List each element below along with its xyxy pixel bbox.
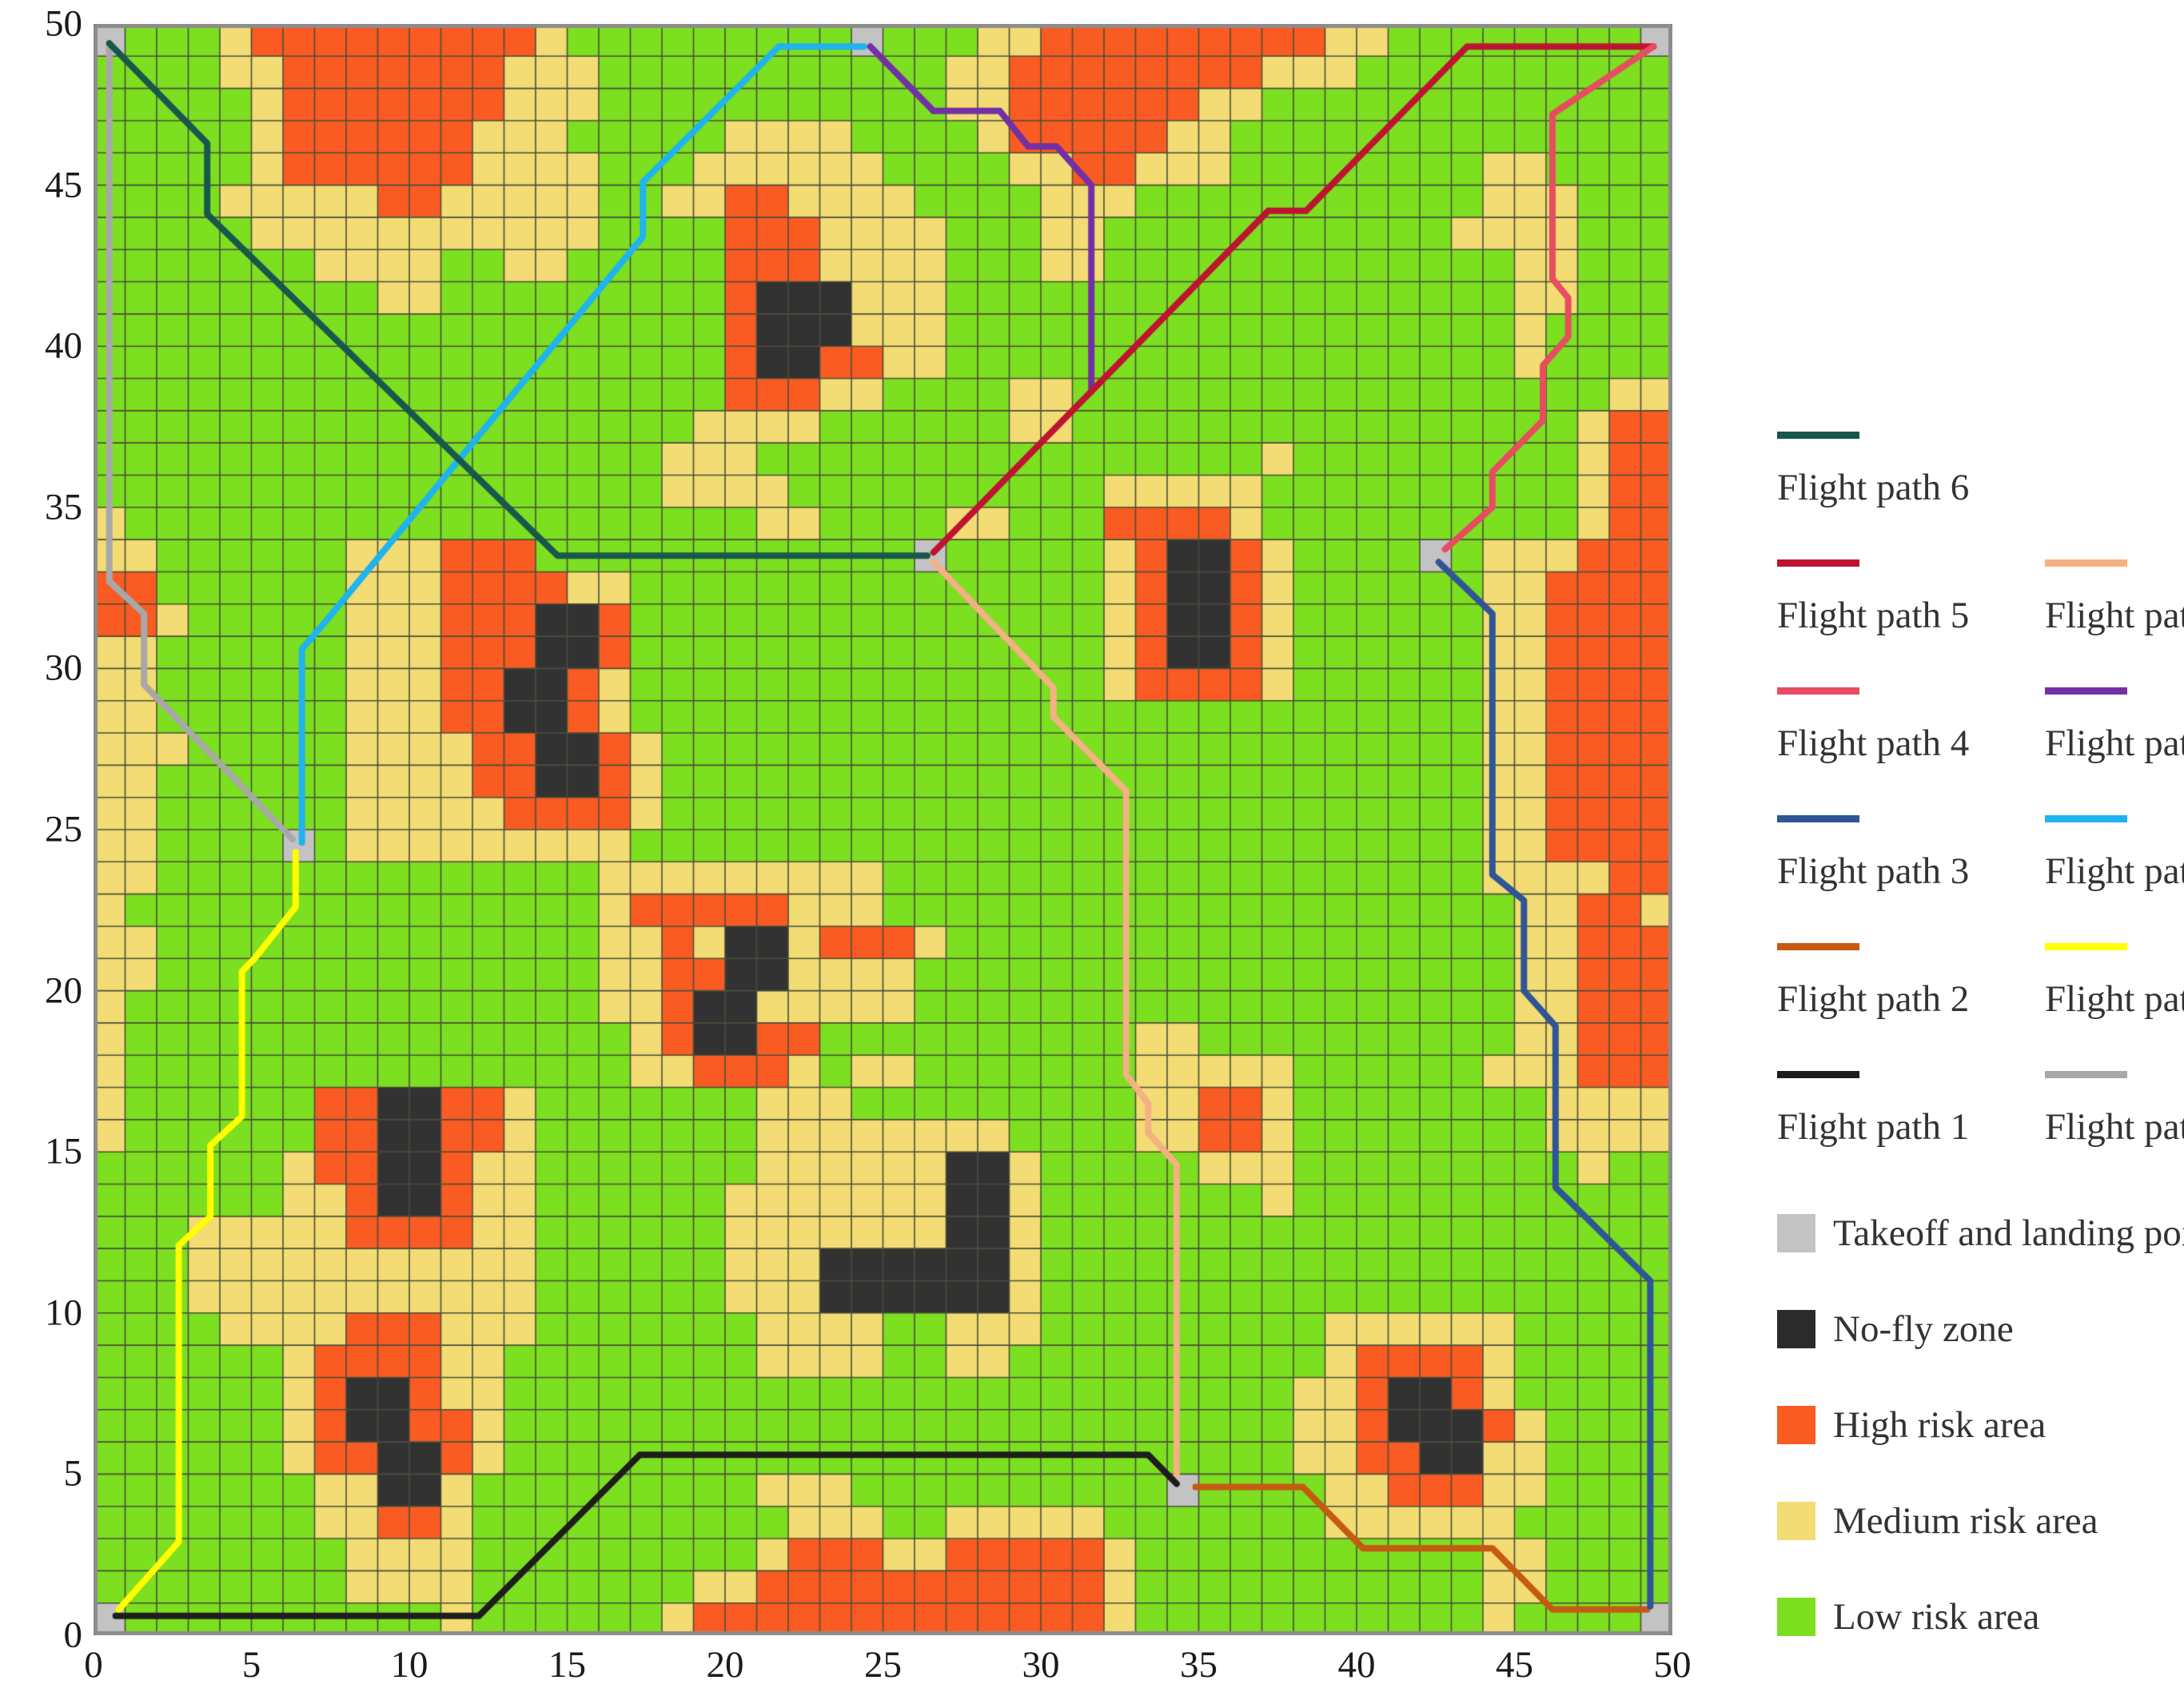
legend-label: Flight path 6 — [1777, 466, 2033, 509]
legend-line-swatch — [2045, 559, 2127, 567]
legend-label: High risk area — [1833, 1403, 2046, 1447]
legend-label: Flight path 11 — [2045, 594, 2184, 637]
x-tick-25: 25 — [864, 1646, 902, 1684]
legend-entry-high-risk-area: High risk area — [1777, 1403, 2046, 1447]
y-tick-20: 20 — [45, 972, 82, 1009]
legend-square-swatch — [1777, 1214, 1815, 1252]
y-tick-45: 45 — [45, 166, 82, 204]
legend-label: Flight path 7 — [2045, 1105, 2184, 1149]
y-tick-25: 25 — [45, 811, 82, 849]
legend-line-swatch — [2045, 815, 2127, 822]
y-tick-50: 50 — [45, 6, 82, 43]
legend-line-swatch — [2045, 687, 2127, 695]
legend-line-swatch — [2045, 943, 2127, 950]
legend-line-swatch — [1777, 687, 1859, 695]
legend-entry-flight-path-1: Flight path 1 — [1777, 1071, 2033, 1149]
legend-line-swatch — [1777, 943, 1859, 950]
legend-entry-flight-path-6: Flight path 6 — [1777, 432, 2033, 509]
x-tick-40: 40 — [1338, 1646, 1376, 1684]
legend-label: Flight path 5 — [1777, 594, 2033, 637]
y-tick-15: 15 — [45, 1133, 82, 1171]
legend-entry-medium-risk-area: Medium risk area — [1777, 1499, 2098, 1543]
legend-square-swatch — [1777, 1406, 1815, 1444]
x-tick-15: 15 — [548, 1646, 586, 1684]
x-tick-0: 0 — [84, 1646, 103, 1684]
legend-label: Flight path 8 — [2045, 977, 2184, 1021]
legend-line-swatch — [1777, 815, 1859, 822]
y-tick-5: 5 — [64, 1455, 83, 1493]
x-tick-30: 30 — [1022, 1646, 1060, 1684]
legend-square-swatch — [1777, 1310, 1815, 1348]
legend-entry-flight-path-2: Flight path 2 — [1777, 943, 2033, 1021]
x-tick-50: 50 — [1654, 1646, 1692, 1684]
legend-line-swatch — [1777, 1071, 1859, 1078]
legend-line-swatch — [1777, 432, 1859, 439]
legend-entry-flight-path-11: Flight path 11 — [2045, 559, 2184, 637]
legend-label: Flight path 3 — [1777, 850, 2033, 893]
legend-entry-flight-path-5: Flight path 5 — [1777, 559, 2033, 637]
risk-grid-canvas — [94, 24, 1672, 1635]
y-tick-0: 0 — [64, 1617, 83, 1654]
legend-square-swatch — [1777, 1502, 1815, 1540]
x-tick-20: 20 — [707, 1646, 744, 1684]
legend-entry-flight-path-3: Flight path 3 — [1777, 815, 2033, 893]
y-tick-40: 40 — [45, 328, 82, 365]
legend-entry-flight-path-7: Flight path 7 — [2045, 1071, 2184, 1149]
legend-entry-flight-path-9: Flight path 9 — [2045, 815, 2184, 893]
legend-label: Flight path 4 — [1777, 722, 2033, 765]
x-tick-10: 10 — [391, 1646, 428, 1684]
legend-entry-takeoff-and-landing-points: Takeoff and landing points — [1777, 1212, 2184, 1255]
uav-risk-map-figure: 05101520253035404550 0510152025303540455… — [0, 0, 2184, 1688]
legend-label: Flight path 2 — [1777, 977, 2033, 1021]
legend-label: No-fly zone — [1833, 1308, 2014, 1351]
y-tick-35: 35 — [45, 488, 82, 526]
legend-entry-flight-path-10: Flight path 10 — [2045, 687, 2184, 765]
x-tick-35: 35 — [1180, 1646, 1218, 1684]
legend-entry-low-risk-area: Low risk area — [1777, 1595, 2039, 1638]
legend-line-swatch — [2045, 1071, 2127, 1078]
x-tick-45: 45 — [1496, 1646, 1533, 1684]
legend-label: Flight path 10 — [2045, 722, 2184, 765]
legend-entry-flight-path-4: Flight path 4 — [1777, 687, 2033, 765]
legend-label: Flight path 9 — [2045, 850, 2184, 893]
legend-label: Flight path 1 — [1777, 1105, 2033, 1149]
legend-label: Low risk area — [1833, 1595, 2039, 1638]
legend-entry-no-fly-zone: No-fly zone — [1777, 1308, 2014, 1351]
y-tick-30: 30 — [45, 650, 82, 687]
legend-label: Takeoff and landing points — [1833, 1212, 2184, 1255]
x-tick-5: 5 — [242, 1646, 261, 1684]
y-tick-10: 10 — [45, 1294, 82, 1332]
legend-line-swatch — [1777, 559, 1859, 567]
legend-entry-flight-path-8: Flight path 8 — [2045, 943, 2184, 1021]
legend-square-swatch — [1777, 1598, 1815, 1636]
legend-label: Medium risk area — [1833, 1499, 2098, 1543]
